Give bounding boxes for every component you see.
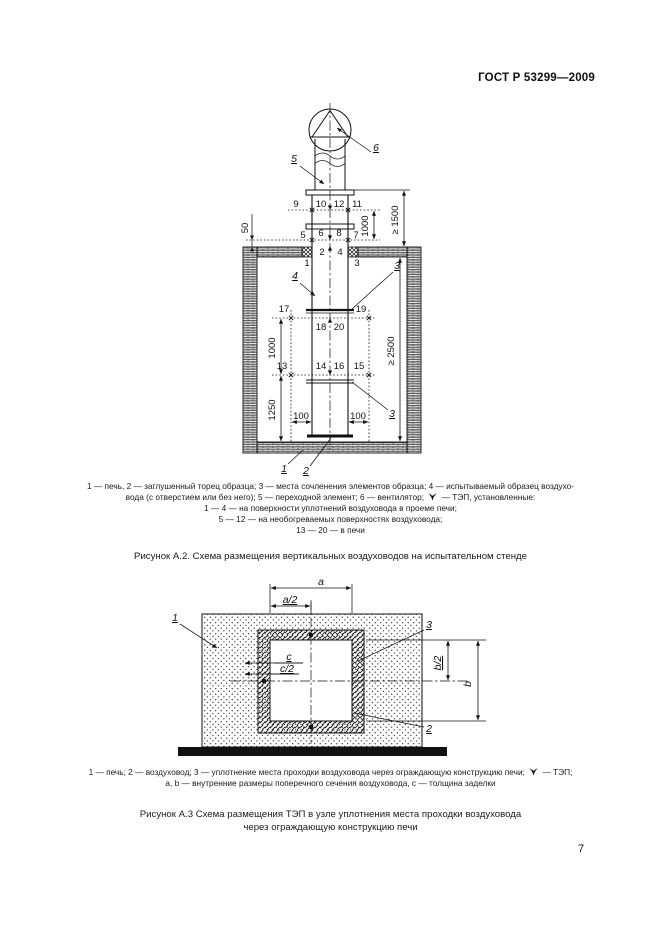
figure-a2-diagram: 9 10 12 11 6 8 5 7 2 4 1 3 17 19 18 20 1…: [0, 95, 661, 480]
ground-bar: [178, 747, 447, 756]
legend-line: a, b — внутренние размеры поперечного се…: [60, 778, 601, 789]
tep-point-9: 9: [293, 199, 298, 210]
dim-50: 50: [240, 223, 251, 234]
callout-specimen: 4: [292, 270, 298, 282]
dim-a: a: [318, 578, 324, 588]
legend-text: 1 — печь; 2 — воздуховод; 3 — уплотнение…: [89, 767, 525, 777]
dim-c-half: c/2: [280, 663, 294, 675]
tep-point-15: 15: [354, 361, 365, 372]
tep-point-13: 13: [277, 361, 288, 372]
tep-point-10: 10: [316, 199, 327, 210]
figure-a3-diagram: a a/2 b/2 b c c/2 1 3 2: [0, 578, 661, 768]
callout-transition: 5: [291, 153, 297, 165]
joint-inside-bottom: [306, 380, 354, 383]
tep-point-6: 6: [318, 228, 323, 239]
tep-point-11: 11: [352, 199, 362, 210]
callout-seal-a3: 3: [426, 619, 432, 631]
document-page: ГОСТ Р 53299—2009: [0, 0, 661, 936]
dim-1250: 1250: [267, 399, 278, 420]
tep-point-1: 1: [304, 258, 309, 269]
tep-point-8: 8: [336, 228, 341, 239]
tep-point-20: 20: [334, 322, 345, 333]
dim-1000-upper: 1000: [360, 215, 371, 236]
callout-joint-bottom: 3: [389, 408, 395, 420]
document-code: ГОСТ Р 53299—2009: [478, 72, 595, 84]
tep-point-18: 18: [316, 322, 327, 333]
legend-line: 1 — печь, 2 — заглушенный торец образца;…: [60, 481, 601, 492]
legend-line: 5 — 12 — на необогреваемых поверхностях …: [60, 514, 601, 525]
tep-point-14: 14: [316, 361, 327, 372]
tep-point-3: 3: [354, 258, 359, 269]
tep-icon: [529, 768, 538, 776]
tep-point-7: 7: [353, 230, 358, 241]
figure-a2-title: Рисунок А.2. Схема размещения вертикальн…: [0, 551, 661, 564]
callout-joint-top: 3: [394, 260, 400, 272]
figure-a3-title-line1: Рисунок А.3 Схема размещения ТЭП в узле …: [0, 809, 661, 822]
legend-line: 1 — 4 — на поверхности уплотнений воздух…: [60, 503, 601, 514]
legend-text: — ТЭП;: [543, 767, 573, 777]
figure-a3-title-line2: через ограждающую конструкцию печи: [0, 822, 661, 835]
dim-100-left: 100: [293, 411, 309, 422]
dim-c: c: [286, 651, 292, 663]
legend-line: вода (с отверстием или без него); 5 — пе…: [60, 492, 601, 503]
callout-duct-a3: 2: [425, 723, 432, 735]
tep-point-5: 5: [300, 230, 305, 241]
tep-icon: [428, 493, 437, 501]
figure-a2-legend: 1 — печь, 2 — заглушенный торец образца;…: [60, 481, 601, 536]
tep-point-4: 4: [337, 247, 342, 258]
legend-text: — ТЭП, установленные:: [442, 492, 536, 502]
callout-fan: 6: [373, 142, 379, 154]
legend-text: вода (с отверстием или без него); 5 — пе…: [126, 492, 424, 502]
figure-a3-legend: 1 — печь; 2 — воздуховод; 3 — уплотнение…: [60, 767, 601, 789]
dim-b: b: [462, 681, 474, 687]
legend-line: 13 — 20 — в печи: [60, 525, 601, 536]
figure-a3-title: Рисунок А.3 Схема размещения ТЭП в узле …: [0, 809, 661, 834]
tep-point-16: 16: [334, 361, 345, 372]
callout-furnace-a3: 1: [172, 612, 178, 624]
dim-1500: ≥ 1500: [390, 206, 401, 235]
dim-1000-lower: 1000: [267, 337, 278, 358]
tep-point-2: 2: [319, 247, 324, 258]
dim-a-half: a/2: [283, 594, 298, 606]
callout-furnace: 1: [281, 463, 287, 475]
tep-point-12: 12: [334, 199, 345, 210]
tep-point-17: 17: [279, 304, 290, 315]
dim-100-right: 100: [350, 411, 366, 422]
callout-plug: 2: [302, 465, 309, 477]
tep-point-19: 19: [356, 304, 367, 315]
dim-b-half: b/2: [432, 656, 444, 671]
page-number: 7: [578, 843, 584, 855]
legend-line: 1 — печь; 2 — воздуховод; 3 — уплотнение…: [60, 767, 601, 778]
joint-inside-top: [306, 310, 354, 313]
dim-2500: ≥ 2500: [386, 337, 397, 366]
